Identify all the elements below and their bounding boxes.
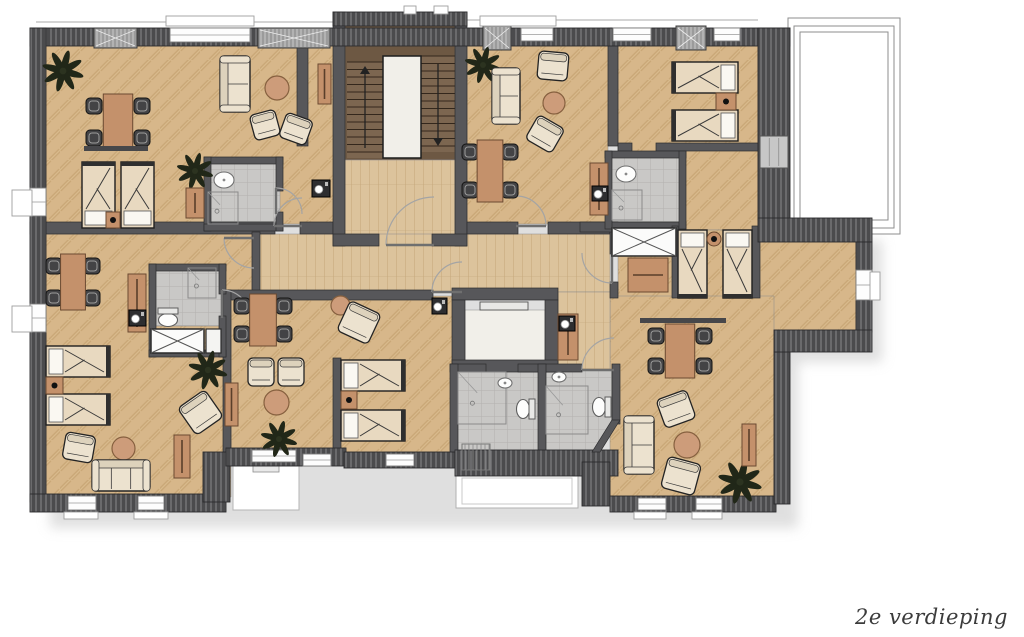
washbasin-unit <box>312 180 330 197</box>
washbasin-unit <box>129 310 146 326</box>
wall <box>541 364 582 372</box>
exterior-wall <box>758 218 872 242</box>
roof-window <box>258 28 330 48</box>
wall <box>432 234 467 246</box>
exterior-wall <box>582 462 610 506</box>
sofa <box>92 460 150 491</box>
washbasin-unit <box>432 298 447 314</box>
wall <box>276 212 283 231</box>
bed <box>341 410 405 441</box>
chair <box>234 298 250 314</box>
sofa <box>624 416 654 474</box>
round-table <box>112 437 135 460</box>
round-table <box>264 390 289 415</box>
exterior-wall <box>30 28 46 502</box>
wall <box>450 364 458 454</box>
table <box>665 324 694 378</box>
pillow <box>681 233 704 247</box>
chair <box>648 328 664 344</box>
balcony-outline <box>456 474 578 508</box>
toilet <box>158 308 178 327</box>
roof-terrace <box>788 18 900 234</box>
wall-unit <box>760 136 788 168</box>
window-sill <box>134 512 168 519</box>
window-sill <box>166 16 254 26</box>
sideboard <box>225 383 238 426</box>
headboard <box>82 162 115 166</box>
nightstand <box>46 377 63 394</box>
washbasin-unit <box>592 186 608 201</box>
roof-window <box>94 28 137 48</box>
wall <box>656 143 760 151</box>
table <box>61 254 86 310</box>
headboard <box>672 110 676 141</box>
wall <box>204 157 283 164</box>
table <box>477 140 503 202</box>
roof-window <box>676 26 706 50</box>
wall <box>618 143 632 151</box>
chair <box>134 130 150 146</box>
floor-label: 2e verdieping <box>855 605 1008 629</box>
exterior-wall <box>758 28 790 220</box>
sink <box>552 372 566 382</box>
bed <box>46 394 110 425</box>
wall <box>276 157 283 191</box>
window-sill <box>64 512 98 519</box>
pillow <box>721 113 735 138</box>
wall <box>333 12 345 246</box>
bed <box>341 360 405 391</box>
sideboard <box>742 424 756 466</box>
desk <box>628 258 668 292</box>
pillow <box>124 211 151 225</box>
nightstand <box>106 212 120 228</box>
closet <box>612 228 676 256</box>
sideboard <box>186 188 204 218</box>
washbasin-unit <box>559 316 575 331</box>
nightstand <box>341 391 357 409</box>
pillow <box>49 397 63 422</box>
bed <box>672 110 738 141</box>
chair <box>696 358 712 374</box>
chair <box>696 328 712 344</box>
wall <box>300 222 333 234</box>
round-table <box>265 76 289 100</box>
bed <box>672 62 738 93</box>
armchair <box>248 358 274 386</box>
wall <box>452 288 558 300</box>
chair <box>84 290 100 306</box>
wall <box>333 234 379 246</box>
table <box>103 94 132 150</box>
stair-hall-floor <box>345 160 455 236</box>
sink <box>616 166 636 182</box>
headboard <box>401 360 405 391</box>
chair <box>134 98 150 114</box>
round-table <box>543 92 565 114</box>
elevator-door <box>480 302 528 310</box>
armchair <box>278 358 304 386</box>
toilet <box>593 397 612 417</box>
chair <box>86 130 102 146</box>
bed <box>678 230 707 298</box>
exterior-wall <box>30 494 226 512</box>
wall <box>612 364 620 424</box>
chair <box>46 258 62 274</box>
round-table <box>674 432 700 458</box>
table <box>250 294 277 346</box>
bed <box>46 346 110 377</box>
armchair <box>62 432 96 464</box>
stair-void <box>383 56 421 158</box>
wall <box>252 232 260 292</box>
porch-step <box>253 466 279 472</box>
wall <box>467 222 518 234</box>
headboard <box>106 394 110 425</box>
armchair <box>537 51 569 82</box>
bathroom-topleft-floor <box>207 160 280 226</box>
wall <box>610 282 618 298</box>
chair <box>502 144 518 160</box>
chair <box>234 326 250 342</box>
pillow <box>721 65 735 90</box>
exterior-wall <box>774 330 872 352</box>
closet <box>151 329 204 353</box>
wall <box>204 224 283 231</box>
bed <box>723 230 752 298</box>
chair <box>502 182 518 198</box>
chair <box>86 98 102 114</box>
floor-plan-drawing <box>0 0 1024 637</box>
chair <box>276 326 292 342</box>
pillow <box>726 233 749 247</box>
window-sill <box>434 6 448 14</box>
wall <box>333 358 341 458</box>
sideboard <box>174 435 190 478</box>
chair <box>462 144 478 160</box>
headboard <box>401 410 405 441</box>
wall <box>455 12 467 246</box>
window-sill <box>12 190 32 216</box>
sink <box>214 172 234 188</box>
headboard <box>106 346 110 377</box>
wall-shelf <box>640 318 726 323</box>
window-sill <box>870 272 880 300</box>
elevator-car <box>465 310 545 362</box>
headboard <box>672 62 676 93</box>
closet <box>206 329 221 353</box>
sink <box>498 378 512 388</box>
toilet <box>517 399 536 419</box>
floor-plan-page: 2e verdieping <box>0 0 1024 637</box>
sofa <box>220 56 250 112</box>
chair <box>462 182 478 198</box>
staircase <box>347 56 455 158</box>
wall-shelf <box>84 146 148 151</box>
window-sill <box>634 512 666 519</box>
armchair <box>249 109 281 141</box>
exterior-wall <box>774 352 790 504</box>
window-sill <box>480 16 556 26</box>
roof-window <box>483 26 511 50</box>
sofa <box>492 68 520 124</box>
headboard <box>723 294 752 298</box>
pillow <box>344 363 358 388</box>
wall <box>679 151 686 229</box>
entry-porch <box>233 466 299 510</box>
chair <box>648 358 664 374</box>
pillow <box>49 349 63 374</box>
wall <box>538 364 546 454</box>
window-sill <box>692 512 722 519</box>
window-sill <box>12 306 32 332</box>
chair <box>46 290 62 306</box>
sideboard <box>318 64 331 104</box>
headboard <box>678 294 707 298</box>
wall <box>605 151 686 158</box>
nightstand <box>707 232 721 246</box>
headboard <box>121 162 154 166</box>
chair <box>84 258 100 274</box>
window-sill <box>404 6 416 14</box>
bed <box>121 162 154 228</box>
nightstand <box>716 93 736 110</box>
pillow <box>344 413 358 438</box>
chair <box>276 298 292 314</box>
